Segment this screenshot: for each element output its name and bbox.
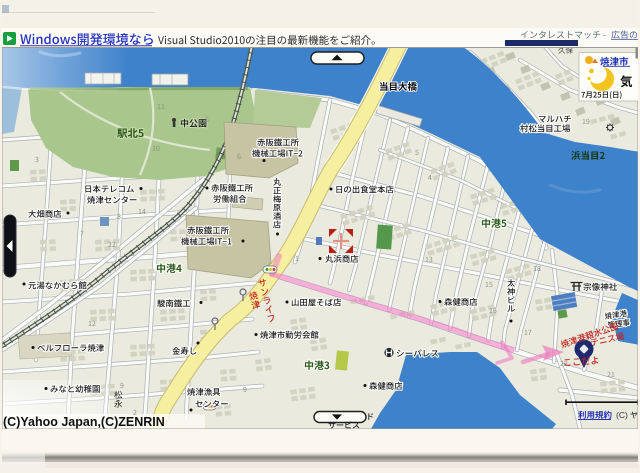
svg-text:(C): (C) <box>616 410 628 420</box>
svg-text:(C)Yahoo Japan,(C)ZENRIN: (C)Yahoo Japan,(C)ZENRIN <box>3 415 165 429</box>
